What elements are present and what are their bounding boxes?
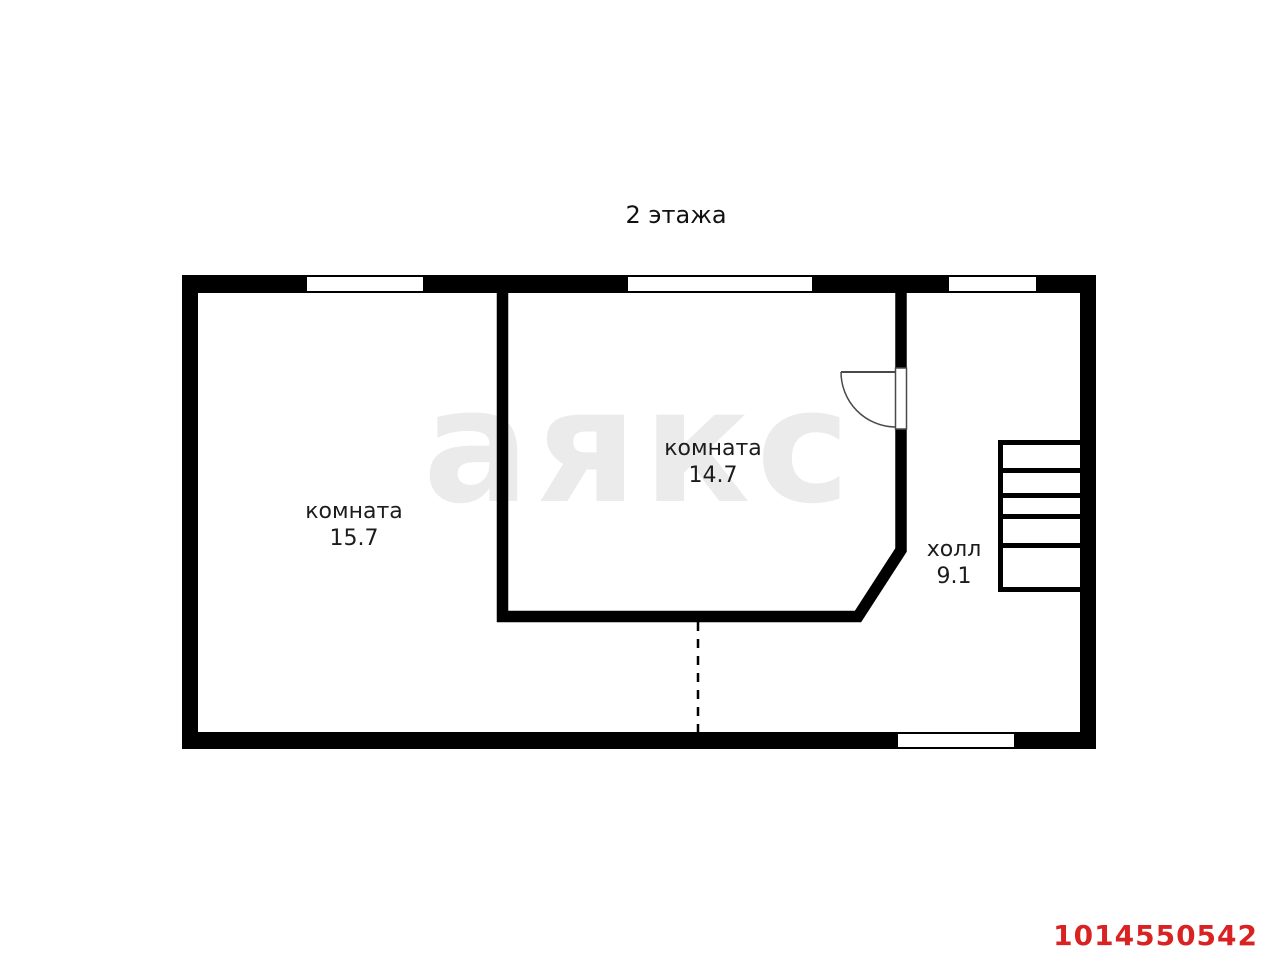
window-top-right bbox=[948, 276, 1037, 292]
hall-label: холл 9.1 bbox=[844, 536, 1064, 590]
room-name: комната bbox=[664, 436, 762, 461]
window-top-middle bbox=[627, 276, 813, 292]
wall-right bbox=[1080, 275, 1096, 749]
room-area: 14.7 bbox=[603, 462, 823, 489]
room-name: комната bbox=[305, 499, 403, 524]
room-name: холл bbox=[927, 537, 982, 562]
door-jamb bbox=[896, 368, 907, 429]
window-top-left bbox=[306, 276, 424, 292]
room-label-157: комната 15.7 bbox=[244, 498, 464, 552]
listing-id: 1014550542 bbox=[1053, 919, 1258, 952]
wall-left bbox=[182, 275, 198, 749]
stairs-tread bbox=[998, 514, 1080, 519]
floor-plan-page: 2 этажа аякс bbox=[0, 0, 1280, 955]
door bbox=[841, 368, 907, 429]
stairs-tread bbox=[998, 468, 1080, 473]
room-area: 15.7 bbox=[244, 525, 464, 552]
stairs-tread bbox=[998, 493, 1080, 498]
door-swing-arc bbox=[841, 372, 895, 427]
window-bottom bbox=[897, 733, 1015, 748]
room-label-147: комната 14.7 bbox=[603, 435, 823, 489]
stairs-tread bbox=[998, 440, 1080, 445]
room-area: 9.1 bbox=[844, 563, 1064, 590]
